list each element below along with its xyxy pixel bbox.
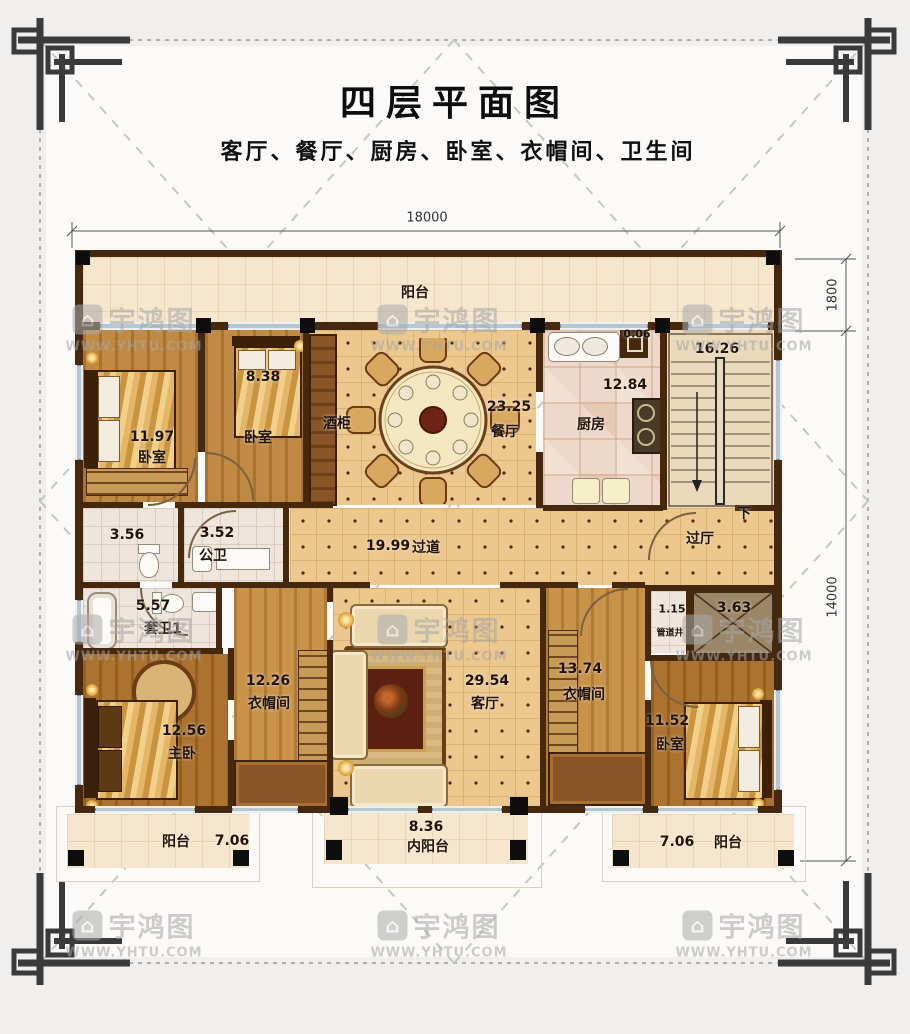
bed-headboard xyxy=(84,698,96,798)
bed-pillow xyxy=(98,420,120,462)
bed-headboard xyxy=(232,336,300,346)
floor-plan-page: { "title": "四层平面图", "subtitle": "客厅、餐厅、厨… xyxy=(0,0,910,1034)
ensuite-area: 5.57 xyxy=(136,598,171,614)
bath-sink xyxy=(192,592,218,612)
staircase xyxy=(667,332,774,508)
bed-pillow xyxy=(98,376,120,418)
toilet-floor xyxy=(83,508,178,582)
sofa-left xyxy=(330,650,368,760)
cloak-left-name: 衣帽间 xyxy=(248,693,290,713)
pipe-shaft-name: 管道井 xyxy=(656,626,683,639)
cloak-right-name: 衣帽间 xyxy=(563,684,605,704)
dining-name: 餐厅 xyxy=(491,421,519,441)
ensuite-name: 套卫1 xyxy=(144,618,182,638)
dresser-left xyxy=(234,760,330,808)
bedroom-tl-area: 11.97 xyxy=(130,429,174,445)
bedroom-t2-area: 8.38 xyxy=(246,369,281,385)
cloak-right-area: 13.74 xyxy=(558,661,602,677)
table-plant xyxy=(374,684,408,718)
dim-balcony-depth: 1800 xyxy=(826,278,841,311)
toilet-bowl xyxy=(139,552,159,578)
pipe-shaft-area: 1.15 xyxy=(658,603,685,616)
balcony-br-name: 阳台 xyxy=(714,832,742,852)
bed-pillow xyxy=(738,706,760,748)
kitchen-stool xyxy=(572,478,600,504)
hall-name: 过厅 xyxy=(686,528,714,548)
bathtub xyxy=(87,592,117,650)
bedroom-br-name: 卧室 xyxy=(656,734,684,754)
bedroom-t2-name: 卧室 xyxy=(244,427,272,447)
dim-height-right: 14000 xyxy=(826,576,841,617)
balcony-inner-name: 内阳台 xyxy=(407,836,449,856)
wine-cabinet-label: 酒柜 xyxy=(323,413,351,433)
burner xyxy=(637,404,655,422)
bed-pillow xyxy=(738,750,760,792)
balcony-top-label: 阳台 xyxy=(401,282,429,302)
dresser-right xyxy=(548,752,647,806)
kitchen-area: 12.84 xyxy=(603,377,647,393)
page-title: 四层平面图 xyxy=(340,74,570,126)
public-bath-area: 3.52 xyxy=(200,525,235,541)
bedroom-br-area: 11.52 xyxy=(645,713,689,729)
public-bath-name: 公卫 xyxy=(199,545,227,565)
toilet-area: 3.56 xyxy=(110,527,145,543)
master-area: 12.56 xyxy=(162,723,206,739)
bedroom-tl-name: 卧室 xyxy=(138,447,166,467)
balcony-inner-area: 8.36 xyxy=(409,819,444,835)
void-area-label: 3.63 xyxy=(717,600,752,616)
living-name: 客厅 xyxy=(471,693,499,713)
dining-area: 23.25 xyxy=(487,399,531,415)
balcony-bl-name: 阳台 xyxy=(162,831,190,851)
master-name: 主卧 xyxy=(168,743,196,763)
sofa-bottom xyxy=(350,764,448,808)
dim-width-top: 18000 xyxy=(406,211,447,226)
corridor-area: 19.99 xyxy=(366,538,410,554)
bed-headboard xyxy=(84,370,96,468)
bed-pillow xyxy=(268,350,296,370)
pipe-shaft-floor xyxy=(651,591,686,653)
bed-pillow xyxy=(238,350,266,370)
stairwell-down: 下 xyxy=(737,503,751,523)
bed-pillow xyxy=(98,706,122,748)
page-subtitle: 客厅、餐厅、厨房、卧室、衣帽间、卫生间 xyxy=(220,134,695,166)
stairwell-area: 16.26 xyxy=(695,341,739,357)
bed-pillow xyxy=(98,750,122,792)
corridor-name: 过道 xyxy=(412,537,440,557)
kitchen-stool xyxy=(602,478,630,504)
balcony-bl-area: 7.06 xyxy=(215,833,250,849)
burner xyxy=(637,428,655,446)
balcony-br-area: 7.06 xyxy=(660,834,695,850)
sofa-top xyxy=(350,604,448,648)
sink-basin xyxy=(554,337,580,356)
sink-basin xyxy=(582,337,608,356)
balcony-br-floor xyxy=(612,814,794,868)
kitchen-name: 厨房 xyxy=(577,414,605,434)
living-area: 29.54 xyxy=(465,673,509,689)
flue-area: 0.06 xyxy=(623,328,650,341)
cloak-left-area: 12.26 xyxy=(246,673,290,689)
